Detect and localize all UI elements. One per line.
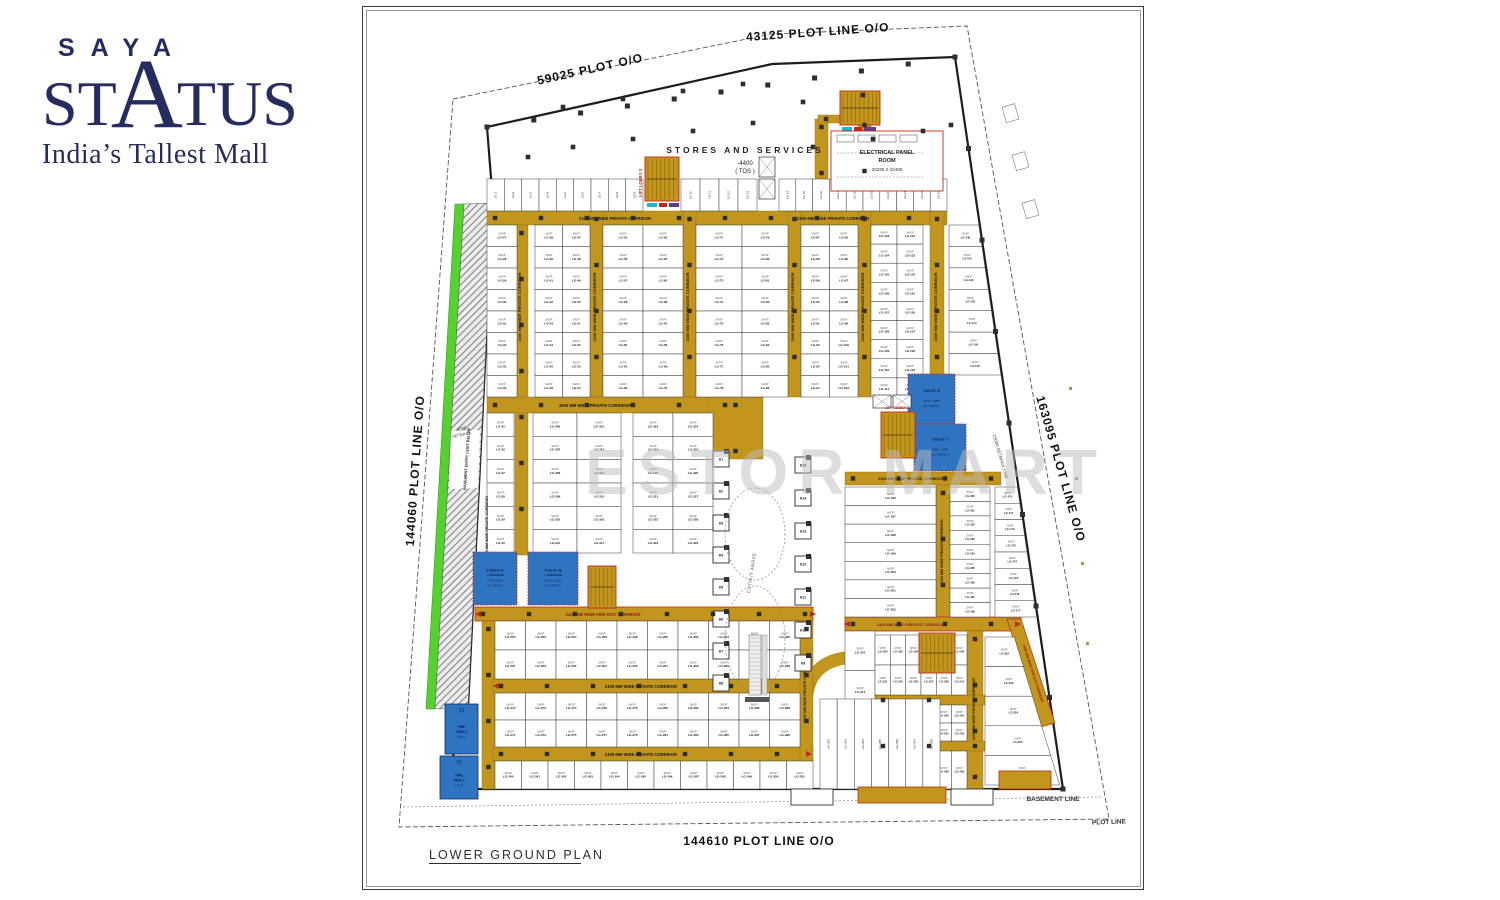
toilet-dims: 7730 x 8150 xyxy=(487,579,503,583)
toilet-sub: + SERVICES xyxy=(544,573,562,577)
shop-number: LG-67 xyxy=(659,321,668,325)
kiosk-number: K2 xyxy=(719,489,723,493)
column-marker xyxy=(980,238,985,243)
shop-number: LG-182 xyxy=(965,523,975,527)
kiosk-column xyxy=(724,609,729,614)
shop-number: LG-71 xyxy=(715,235,724,239)
stall-number: LG-8 xyxy=(615,191,619,198)
shop-number: LG-223 xyxy=(1004,681,1014,685)
shop-number: LG-237 xyxy=(924,680,934,684)
shop-number: LG-75 xyxy=(715,321,724,325)
shop-number: LG-86 xyxy=(761,386,770,390)
column-marker xyxy=(1007,421,1012,426)
stall-number: LG-21 xyxy=(903,191,907,199)
column-marker xyxy=(526,155,531,160)
column-marker xyxy=(935,309,939,313)
shop-number: LG-271 xyxy=(505,733,516,737)
shop-number: LG-100 xyxy=(839,343,850,347)
shop-number: LG-109 xyxy=(879,349,890,353)
shop-number: LG-77 xyxy=(715,364,724,368)
planter-dot xyxy=(1086,642,1089,645)
column-marker xyxy=(1061,787,1066,792)
stall-number: LG-11 xyxy=(708,191,712,199)
electrical-panel xyxy=(837,135,854,142)
shop-number: LG-40 xyxy=(496,541,505,545)
column-marker xyxy=(733,449,737,453)
shop-number: LG-313 xyxy=(594,448,605,452)
column-marker xyxy=(943,622,947,626)
stall-number: LG-352 xyxy=(827,739,831,749)
shop-number: LG-116 xyxy=(905,311,916,315)
plan-frame: SHOPLG-27SHOPLG-28SHOPLG-29SHOPLG-30SHOP… xyxy=(362,6,1144,890)
corridor-label: 2100 MM WIDE PRIVATE CORRIDOR xyxy=(878,477,944,481)
shop-number: LG-28 xyxy=(498,257,507,261)
fire-tank-block xyxy=(445,704,478,754)
shop-number: LG-41 xyxy=(544,278,553,282)
column-marker xyxy=(571,145,576,150)
toilet-note: ( A1 / DETAIL ) xyxy=(544,584,561,588)
shop-number: LG-217 xyxy=(855,690,866,694)
brand-status-st: ST xyxy=(42,78,117,129)
signage-strip xyxy=(669,203,679,207)
planter-dot xyxy=(1075,477,1078,480)
shop-number: LG-263 xyxy=(688,664,699,668)
shop-number: LG-233 xyxy=(893,680,903,684)
column-marker xyxy=(907,216,911,220)
shop-number: LG-250 xyxy=(939,714,949,718)
stall-number: LG-5 xyxy=(563,191,567,198)
shop-number: LG-184 xyxy=(965,552,975,556)
shop-number: LG-344 xyxy=(609,775,620,779)
shop-number: LG-275 xyxy=(566,733,577,737)
column-marker xyxy=(719,90,724,95)
shop-number: LG-187 xyxy=(965,595,975,599)
shop-number: LG-343 xyxy=(583,775,594,779)
shop-number: LG-341 xyxy=(530,775,541,779)
column-marker xyxy=(585,216,589,220)
column-marker xyxy=(481,612,485,616)
column-marker xyxy=(851,622,855,626)
column-marker xyxy=(733,403,737,407)
column-marker xyxy=(486,765,490,769)
shop-number: LG-69 xyxy=(659,364,668,368)
column-marker xyxy=(804,719,808,723)
shop-number: LG-181 xyxy=(965,508,975,512)
corridor-label: 2100 MM WIDE PRIVATE CORRIDOR xyxy=(797,216,869,221)
shop-number: LG-58 xyxy=(619,300,628,304)
column-marker xyxy=(862,263,866,267)
shop-number: LG-146 xyxy=(970,364,980,368)
column-marker xyxy=(757,612,761,616)
column-marker xyxy=(775,752,779,756)
shop-number: LG-88 xyxy=(811,257,820,261)
stall-number: LG-22 xyxy=(920,191,924,199)
shop-number: LG-329 xyxy=(688,541,699,545)
column-marker xyxy=(594,217,598,221)
kiosk-number: K15 xyxy=(800,463,806,467)
column-marker xyxy=(619,612,623,616)
column-marker xyxy=(819,125,823,129)
toilet-note: ( A1 / DETAIL 2 ) xyxy=(930,453,949,457)
tank-capacity: 375 KL xyxy=(457,735,466,739)
shop-number: LG-37 xyxy=(496,471,505,475)
column-marker xyxy=(941,491,945,495)
shop-number: LG-174 xyxy=(1007,560,1017,564)
shop-number: LG-320 xyxy=(648,471,659,475)
shop-number: LG-315 xyxy=(594,494,605,498)
shop-number: LG-270 xyxy=(505,706,516,710)
shop-number: LG-44 xyxy=(544,343,553,347)
column-marker xyxy=(935,217,939,221)
shop-number: LG-317 xyxy=(594,541,605,545)
column-marker xyxy=(765,83,770,88)
entry-ramp xyxy=(999,771,1051,789)
plan-text: ELECTRICAL PANEL xyxy=(860,150,915,156)
stall-number: LG-23 xyxy=(937,191,941,199)
shop-number: LG-312 xyxy=(594,424,605,428)
shop-number: LG-36 xyxy=(496,448,505,452)
stall-number: LG-15 xyxy=(802,191,806,199)
shop-number: LG-257 xyxy=(597,664,608,668)
shop-number: LG-224 xyxy=(1009,711,1019,715)
shop-number: LG-272 xyxy=(536,706,547,710)
shop-number: LG-107 xyxy=(879,311,890,315)
column-marker xyxy=(741,82,746,87)
stall-number: LG-14 xyxy=(785,191,789,199)
kiosk-number: K11 xyxy=(800,595,806,599)
shop-number: LG-118 xyxy=(905,349,916,353)
shop-number: LG-104 xyxy=(879,253,890,257)
shop-number: LG-111 xyxy=(879,387,889,391)
column-marker xyxy=(687,217,691,221)
signage-strip xyxy=(854,127,862,131)
tank-name: FIRE xyxy=(458,725,465,729)
shop-number: LG-33 xyxy=(498,364,507,368)
shop-number: LG-97 xyxy=(839,278,848,282)
shop-number: LG-172 xyxy=(1005,527,1015,531)
shop-number: LG-239 xyxy=(939,680,949,684)
shop-number: LG-350 xyxy=(768,775,779,779)
column-marker xyxy=(591,752,595,756)
corridor-label: 2100 MM WIDE PRIVATE CORRIDOR xyxy=(790,272,795,341)
column-marker xyxy=(966,146,971,151)
shop-number: LG-39 xyxy=(496,518,505,522)
exit-stair-protrusion xyxy=(791,789,833,805)
shop-number: LG-27 xyxy=(498,235,507,239)
toilet-dims: 9905 x 7985 xyxy=(932,448,948,452)
shop-number: LG-108 xyxy=(879,330,890,334)
shop-number: LG-30 xyxy=(498,300,507,304)
column-marker xyxy=(862,169,866,173)
service-box xyxy=(1012,152,1029,171)
column-marker xyxy=(539,216,543,220)
toilet-note: ( A1 / DETAIL ) xyxy=(923,404,940,408)
shop-number: LG-74 xyxy=(715,300,724,304)
shop-number: LG-31 xyxy=(498,321,507,325)
column-marker xyxy=(1047,695,1052,700)
column-marker xyxy=(819,171,823,175)
shop-number: LG-235 xyxy=(909,680,919,684)
kiosk-number: K7 xyxy=(719,649,723,653)
basement-line xyxy=(403,797,1103,807)
column-marker xyxy=(539,403,543,407)
shop-number: LG-196 xyxy=(885,496,896,500)
column-marker xyxy=(927,698,931,702)
shop-number: LG-259 xyxy=(627,664,638,668)
floor-plan: SHOPLG-27SHOPLG-28SHOPLG-29SHOPLG-30SHOP… xyxy=(363,7,1145,891)
shop-number: LG-38 xyxy=(496,494,505,498)
column-marker xyxy=(751,121,756,126)
column-marker xyxy=(527,612,531,616)
kiosk-number: K8 xyxy=(719,681,723,685)
column-marker xyxy=(691,129,696,134)
shop-number: LG-309 xyxy=(550,494,561,498)
stall-number: LG-20 xyxy=(886,191,890,199)
kiosk-column xyxy=(724,481,729,486)
plan-text: 59025 PLOT O/O xyxy=(536,51,645,88)
shop-number: LG-51 xyxy=(572,321,581,325)
column-marker xyxy=(499,752,503,756)
kiosk-column xyxy=(806,488,811,493)
shop-number: LG-340 xyxy=(503,775,514,779)
column-marker xyxy=(486,627,490,631)
column-marker xyxy=(792,309,796,313)
shop-number: LG-307 xyxy=(550,448,561,452)
shop-number: LG-61 xyxy=(619,364,628,368)
shop-number: LG-112 xyxy=(905,234,916,238)
column-marker xyxy=(519,323,523,327)
shop-number: LG-225 xyxy=(1013,740,1023,744)
shop-number: LG-50 xyxy=(572,300,581,304)
shop-number: LG-321 xyxy=(648,494,659,498)
shop-number: LG-94 xyxy=(811,386,820,390)
shop-number: LG-82 xyxy=(761,300,770,304)
corridor xyxy=(818,115,843,123)
kiosk-column xyxy=(806,587,811,592)
shop-number: LG-262 xyxy=(688,635,699,639)
shop-number: LG-43 xyxy=(544,321,553,325)
toilet-name: TOILET D xyxy=(923,389,940,393)
shop-number: LG-76 xyxy=(715,343,724,347)
column-marker xyxy=(519,415,523,419)
shop-number: LG-230 xyxy=(878,650,888,654)
column-marker xyxy=(862,309,866,313)
entry-ramp xyxy=(858,787,946,803)
shop-number: LG-269 xyxy=(780,664,791,668)
kiosk-number: K13 xyxy=(800,529,806,533)
shop-number: LG-96 xyxy=(839,257,848,261)
stall-number: LG-6 xyxy=(580,191,584,198)
column-marker xyxy=(519,461,523,465)
toilet-name: TOILET A xyxy=(486,569,503,573)
column-marker xyxy=(687,309,691,313)
brand-logo: SAYA ST A TUS India’s Tallest Mall xyxy=(42,34,352,171)
shop-number: LG-35 xyxy=(496,424,505,428)
shop-number: LG-85 xyxy=(761,364,770,368)
escalator-rail xyxy=(762,635,767,695)
brand-tagline: India’s Tallest Mall xyxy=(42,139,352,171)
column-marker xyxy=(578,111,583,116)
service-box xyxy=(1002,104,1019,123)
shop-number: LG-253 xyxy=(536,664,547,668)
column-marker xyxy=(561,105,566,110)
shop-number: LG-29 xyxy=(498,278,507,282)
column-marker xyxy=(906,62,911,67)
plan-text: -4400 xyxy=(737,161,753,167)
brand-status-tus: TUS xyxy=(177,78,298,129)
planter-dot xyxy=(1069,387,1072,390)
shop-number: LG-101 xyxy=(839,364,850,368)
plan-text: STORES AND SERVICES xyxy=(666,145,823,155)
plan-text: ( TOS ) xyxy=(735,169,754,175)
shop-number: LG-282 xyxy=(688,706,699,710)
shop-number: LG-308 xyxy=(550,471,561,475)
column-marker xyxy=(665,612,669,616)
column-marker xyxy=(729,684,733,688)
column-marker xyxy=(672,97,677,102)
column-marker xyxy=(989,622,993,626)
page: SAYA ST A TUS India’s Tallest Mall SHOPL… xyxy=(0,0,1500,900)
kiosk-number: K6 xyxy=(719,617,723,621)
column-marker xyxy=(881,744,885,748)
column-marker xyxy=(677,216,681,220)
column-marker xyxy=(935,263,939,267)
shop-number: LG-98 xyxy=(839,300,848,304)
column-marker xyxy=(973,775,977,779)
corridor-label: 2100 MM WIDE PRIVATE CORRIDOR xyxy=(592,272,597,341)
shop-number: LG-222 xyxy=(999,651,1009,655)
shop-number: LG-274 xyxy=(566,706,577,710)
shop-number: LG-145 xyxy=(969,342,979,346)
shop-number: LG-276 xyxy=(597,706,608,710)
signage-strip xyxy=(659,203,667,207)
column-marker xyxy=(804,627,808,631)
stall-number: LG-12 xyxy=(727,191,731,199)
shop-number: LG-284 xyxy=(719,706,730,710)
column-marker xyxy=(941,537,945,541)
column-marker xyxy=(677,403,681,407)
kiosk-number: K1 xyxy=(719,457,723,461)
column-marker xyxy=(493,403,497,407)
shop-number: LG-283 xyxy=(688,733,699,737)
shop-number: LG-232 xyxy=(893,650,903,654)
shop-number: LG-140 xyxy=(961,235,971,239)
shop-number: LG-45 xyxy=(544,364,553,368)
column-marker xyxy=(687,263,691,267)
shop-number: LG-59 xyxy=(619,321,628,325)
column-marker xyxy=(493,216,497,220)
shop-number: LG-234 xyxy=(909,650,919,654)
shop-number: LG-32 xyxy=(498,343,507,347)
shop-number: LG-322 xyxy=(648,518,659,522)
shop-number: LG-253 xyxy=(955,732,965,736)
corridor-label: 2100 MM WIDE PRIVATE CORRIDOR xyxy=(933,272,938,341)
plan-text: LIFT LOBBY 3 xyxy=(638,168,643,197)
stall-number: LG-16 xyxy=(819,191,823,199)
kiosk-column xyxy=(806,620,811,625)
shop-number: LG-110 xyxy=(879,368,890,372)
column-marker xyxy=(519,231,523,235)
shop-number: LG-39 xyxy=(544,235,553,239)
tank-capacity: 275 KL xyxy=(455,784,464,788)
shop-number: LG-199 xyxy=(885,552,896,556)
kiosk-number: K4 xyxy=(719,553,723,557)
column-marker xyxy=(637,752,641,756)
shop-number: LG-349 xyxy=(742,775,753,779)
column-marker xyxy=(711,612,715,616)
shop-number: LG-48 xyxy=(572,257,581,261)
column-marker xyxy=(989,476,993,480)
shop-number: LG-65 xyxy=(659,278,668,282)
shop-number: LG-81 xyxy=(761,278,770,282)
shop-number: LG-93 xyxy=(811,364,820,368)
column-marker xyxy=(519,277,523,281)
column-marker xyxy=(591,684,595,688)
column-marker xyxy=(631,216,635,220)
column-marker xyxy=(927,744,931,748)
shop-number: LG-251 xyxy=(505,664,516,668)
shop-number: LG-95 xyxy=(839,235,848,239)
shop-number: LG-325 xyxy=(688,448,699,452)
shop-number: LG-231 xyxy=(878,680,888,684)
corridor-label: 2100 MM WIDE PRIVATE CORRIDOR xyxy=(517,272,522,341)
shop-number: LG-319 xyxy=(648,448,659,452)
column-marker xyxy=(973,744,977,748)
brand-status-tower-a: A xyxy=(111,54,183,134)
shop-number: LG-52 xyxy=(572,343,581,347)
corridor-label: 2400 MM WIDE FIRE EXIT CORRIDOR xyxy=(877,623,945,627)
shop-number: LG-285 xyxy=(719,733,730,737)
column-marker xyxy=(637,684,641,688)
corridor xyxy=(482,621,495,789)
column-marker xyxy=(973,698,977,702)
shop-number: LG-259 xyxy=(955,770,965,774)
shop-number: LG-72 xyxy=(715,257,724,261)
toilet-note: ( A1 / DETAIL ) xyxy=(486,584,503,588)
column-marker xyxy=(631,137,636,142)
kiosk-column xyxy=(806,653,811,658)
shop-number: LG-99 xyxy=(839,321,848,325)
column-marker xyxy=(897,476,901,480)
shop-number: LG-216 xyxy=(855,650,866,654)
corridor-label: 3000 MM WIDE PRIVATE CORRIDOR xyxy=(559,403,631,408)
kiosk-column xyxy=(724,577,729,582)
stall-number: LG-13 xyxy=(746,191,750,199)
column-marker xyxy=(801,100,806,105)
column-marker xyxy=(723,403,727,407)
shop-number: LG-346 xyxy=(662,775,673,779)
corridor-label: 2100 MM WIDE PRIVATE CORRIDOR xyxy=(940,519,944,585)
column-marker xyxy=(573,612,577,616)
kiosk-number: K9 xyxy=(801,661,805,665)
column-marker xyxy=(943,476,947,480)
stall-number: LG-354 xyxy=(861,739,865,749)
column-marker xyxy=(485,125,490,130)
column-marker xyxy=(594,263,598,267)
shop-number: LG-114 xyxy=(905,272,916,276)
shop-number: LG-351 xyxy=(795,775,806,779)
shop-number: LG-70 xyxy=(659,386,668,390)
shop-number: LG-46 xyxy=(544,386,553,390)
toilet-name: TOILET B xyxy=(544,569,561,573)
shop-number: LG-47 xyxy=(572,235,581,239)
shop-number: LG-105 xyxy=(879,272,890,276)
column-marker xyxy=(621,97,626,102)
shop-number: LG-84 xyxy=(761,343,770,347)
column-marker xyxy=(792,217,796,221)
corridor xyxy=(487,211,947,225)
shop-number: LG-64 xyxy=(659,257,668,261)
